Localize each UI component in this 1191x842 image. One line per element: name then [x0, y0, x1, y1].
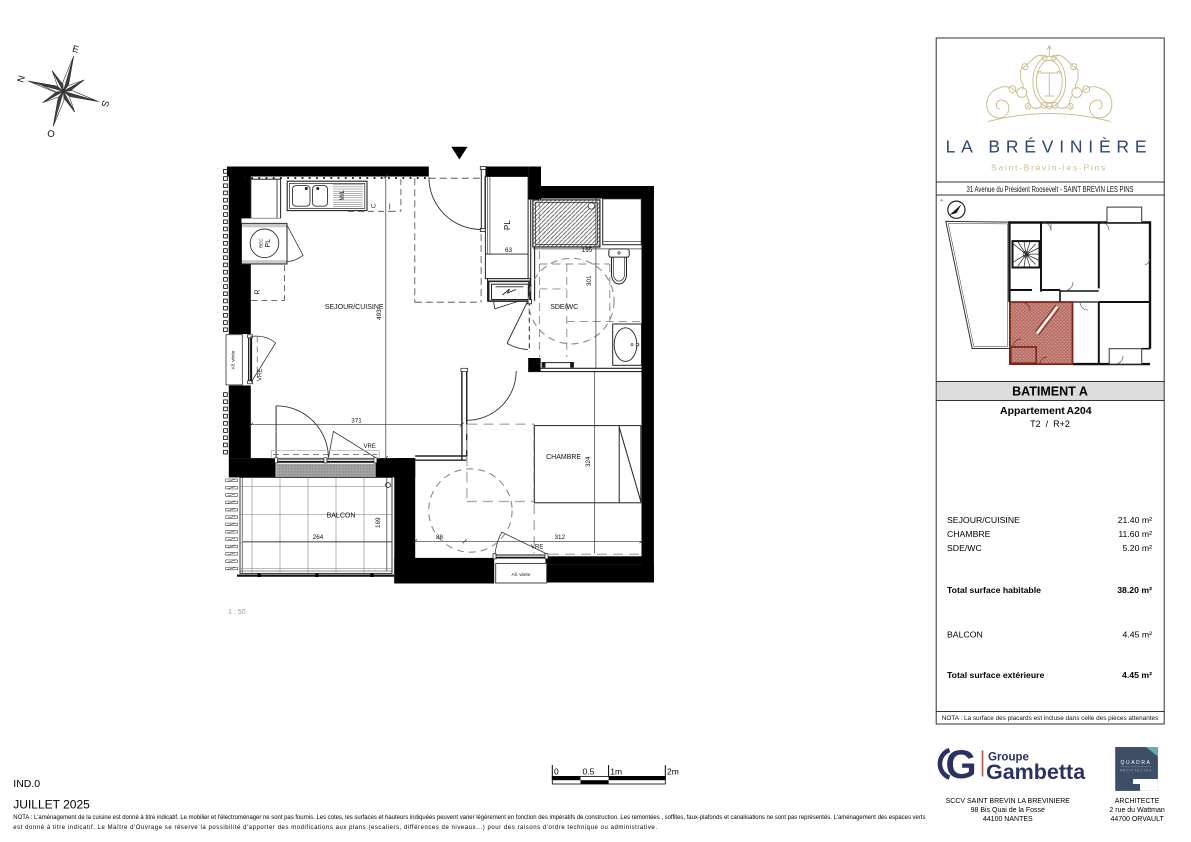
svg-text:VRE: VRE: [258, 369, 264, 381]
svg-text:REC: REC: [259, 238, 264, 248]
svg-text:21.40 m²: 21.40 m²: [1118, 515, 1152, 525]
svg-text:98 Bis Quai de la Fosse: 98 Bis Quai de la Fosse: [971, 807, 1045, 814]
svg-text:LA BRÉVINIÈRE: LA BRÉVINIÈRE: [946, 137, 1153, 157]
svg-text:264: 264: [313, 534, 324, 541]
svg-text:Gambetta: Gambetta: [986, 760, 1086, 784]
svg-text:371: 371: [351, 418, 362, 425]
svg-text:0.5: 0.5: [583, 767, 595, 777]
svg-text:BATIMENT A: BATIMENT A: [1012, 385, 1088, 399]
svg-text:SEJOUR/CUISINE: SEJOUR/CUISINE: [947, 515, 1020, 525]
svg-text:O: O: [46, 127, 56, 140]
svg-text:est donné à titre indicatif. L: est donné à titre indicatif. Le Maître d…: [13, 825, 657, 831]
svg-text:S: S: [99, 99, 111, 108]
svg-text:Total surface habitable: Total surface habitable: [947, 585, 1041, 595]
svg-text:SCCV SAINT BREVIN LA BREVINIER: SCCV SAINT BREVIN LA BREVINIERE: [946, 798, 1071, 805]
svg-text:5.20 m²: 5.20 m²: [1123, 543, 1153, 553]
svg-text:63: 63: [505, 247, 513, 254]
svg-text:4.45 m²: 4.45 m²: [1123, 630, 1153, 640]
svg-text:ARCHITECTES: ARCHITECTES: [1120, 769, 1152, 773]
svg-text:169: 169: [375, 517, 382, 528]
svg-text:4.45 m²: 4.45 m²: [1122, 670, 1152, 680]
svg-text:44100 NANTES: 44100 NANTES: [983, 816, 1033, 823]
svg-text:BALCON: BALCON: [327, 513, 356, 520]
svg-text:A204: A204: [1067, 405, 1092, 417]
svg-text:Saint-Brévin-les-Pins: Saint-Brévin-les-Pins: [991, 163, 1107, 173]
svg-text:31 Avenue du Président Rooseve: 31 Avenue du Président Roosevelt - SAINT…: [967, 185, 1134, 194]
svg-text:0: 0: [554, 767, 559, 777]
svg-text:E: E: [71, 44, 80, 56]
svg-text:2 rue du Wattman: 2 rue du Wattman: [1109, 807, 1164, 814]
svg-text:NOTA : L'aménagement de la cui: NOTA : L'aménagement de la cuisine est d…: [13, 815, 925, 821]
svg-text:1m: 1m: [610, 767, 622, 777]
svg-text:PL: PL: [265, 239, 272, 248]
svg-text:C: C: [371, 203, 378, 208]
svg-text:IND.0: IND.0: [13, 778, 40, 790]
svg-text:R: R: [255, 290, 262, 295]
svg-text:44700 ORVAULT: 44700 ORVAULT: [1110, 816, 1164, 823]
svg-text:JUILLET 2025: JUILLET 2025: [13, 798, 90, 812]
svg-text:G: G: [946, 743, 977, 787]
svg-text:SDE/WC: SDE/WC: [947, 543, 982, 553]
svg-text:T2 / R+2: T2 / R+2: [1030, 419, 1070, 429]
svg-text:ARCHITECTE: ARCHITECTE: [1115, 798, 1160, 805]
svg-text:VRE: VRE: [531, 545, 543, 551]
svg-text:CHAMBRE: CHAMBRE: [546, 454, 581, 461]
svg-text:All. vitrée: All. vitrée: [231, 350, 236, 369]
svg-text:Appartement: Appartement: [1000, 405, 1065, 417]
svg-text:SDE/WC: SDE/WC: [550, 304, 578, 311]
svg-text:QUADRA: QUADRA: [1121, 760, 1152, 766]
svg-text:N: N: [15, 74, 28, 84]
svg-text:1 : 50: 1 : 50: [228, 609, 246, 616]
svg-text:324: 324: [585, 456, 592, 467]
svg-text:NOTA : La surface des placards: NOTA : La surface des placards est inclu…: [942, 715, 1159, 722]
svg-text:CHAMBRE: CHAMBRE: [947, 529, 991, 539]
svg-text:493: 493: [376, 309, 383, 320]
svg-text:312: 312: [554, 534, 565, 541]
svg-text:301: 301: [586, 275, 593, 286]
svg-text:M/L: M/L: [339, 190, 346, 201]
svg-text:11.60 m²: 11.60 m²: [1118, 529, 1152, 539]
svg-text:2m: 2m: [667, 767, 679, 777]
svg-text:Total surface extérieure: Total surface extérieure: [947, 670, 1045, 680]
svg-text:88: 88: [436, 534, 444, 541]
svg-text:BALCON: BALCON: [947, 630, 983, 640]
svg-text:PL: PL: [503, 220, 512, 230]
svg-text:195: 195: [582, 247, 593, 254]
svg-text:VRE: VRE: [364, 444, 376, 450]
svg-text:38.20 m²: 38.20 m²: [1117, 585, 1152, 595]
svg-text:All. vitrée: All. vitrée: [512, 572, 531, 577]
